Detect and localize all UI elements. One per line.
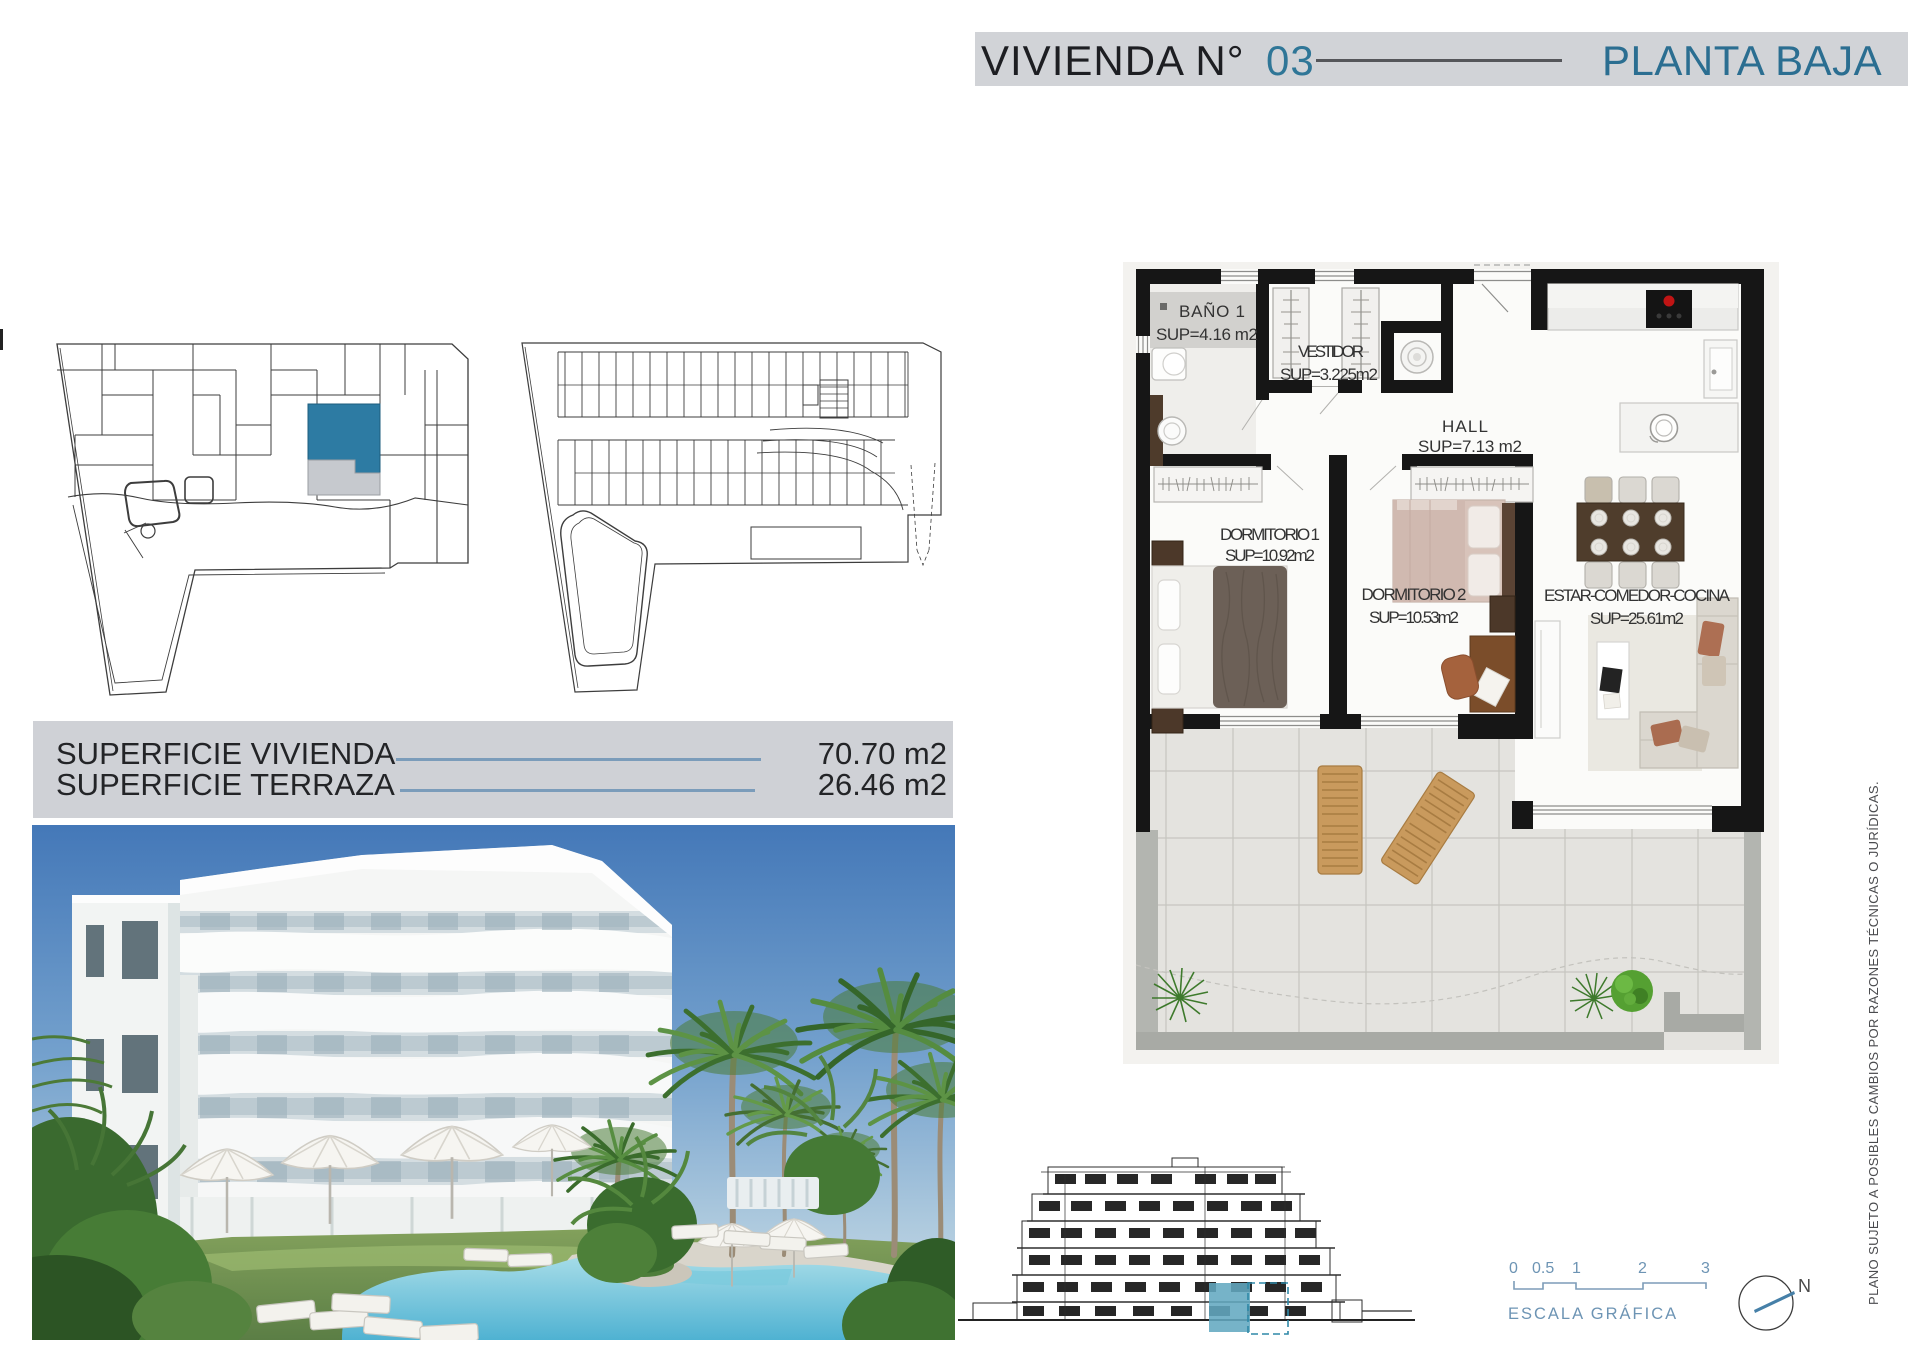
svg-text:BAÑO 1: BAÑO 1 [1179, 302, 1245, 321]
svg-text:SUP=3.225m2: SUP=3.225m2 [1280, 365, 1378, 384]
svg-text:3: 3 [1701, 1260, 1710, 1277]
svg-text:N: N [1798, 1276, 1811, 1296]
svg-text:0.5: 0.5 [1532, 1260, 1554, 1277]
svg-text:DORMITORIO 1: DORMITORIO 1 [1220, 525, 1320, 544]
svg-text:2: 2 [1638, 1260, 1647, 1277]
svg-text:0: 0 [1509, 1260, 1518, 1277]
svg-text:SUP=10.92m2: SUP=10.92m2 [1225, 546, 1315, 565]
svg-text:SUP=7.13 m2: SUP=7.13 m2 [1418, 437, 1522, 456]
svg-text:VESTIDOR: VESTIDOR [1298, 342, 1364, 361]
svg-text:SUP=4.16 m2: SUP=4.16 m2 [1156, 325, 1258, 344]
svg-text:HALL: HALL [1442, 417, 1488, 436]
svg-text:SUP=10.53m2: SUP=10.53m2 [1369, 608, 1459, 627]
svg-text:ESCALA GRÁFICA: ESCALA GRÁFICA [1508, 1304, 1678, 1323]
svg-text:SUP=25.61m2: SUP=25.61m2 [1590, 609, 1684, 628]
svg-text:ESTAR-COMEDOR-COCINA: ESTAR-COMEDOR-COCINA [1544, 586, 1731, 605]
svg-text:1: 1 [1572, 1260, 1581, 1277]
svg-text:DORMITORIO 2: DORMITORIO 2 [1362, 585, 1467, 604]
